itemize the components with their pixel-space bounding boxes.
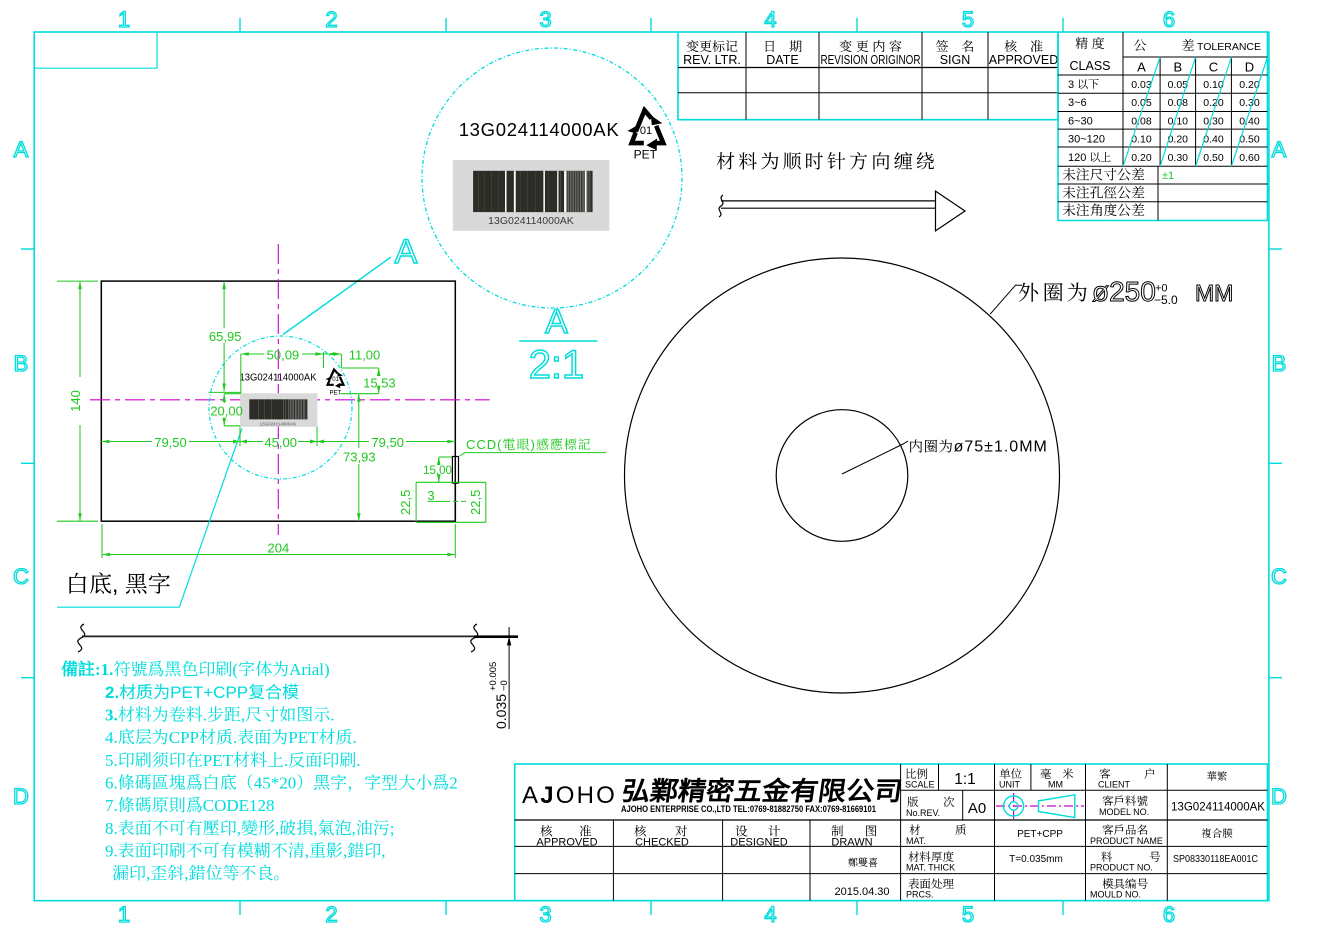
svg-text:SIGN: SIGN <box>940 53 971 67</box>
svg-text:PRODUCT NAME: PRODUCT NAME <box>1090 836 1163 846</box>
svg-text:140: 140 <box>68 390 83 412</box>
svg-text:D: D <box>13 784 29 809</box>
svg-text:5: 5 <box>962 902 974 927</box>
svg-text:複合膜: 複合膜 <box>1201 828 1233 840</box>
svg-text:華繁: 華繁 <box>1207 771 1228 783</box>
svg-text:MOULD NO.: MOULD NO. <box>1090 890 1141 900</box>
svg-text:−5.0: −5.0 <box>1154 293 1178 307</box>
svg-text:3: 3 <box>539 7 551 32</box>
svg-text:8.表面不可有壓印,變形,破損,氣泡,油污;: 8.表面不可有壓印,變形,破損,氣泡,油污; <box>105 819 394 838</box>
svg-text:材料为顺时针方向缠绕: 材料为顺时针方向缠绕 <box>716 151 938 173</box>
svg-text:D: D <box>1271 784 1287 809</box>
svg-text:1: 1 <box>118 7 130 32</box>
svg-text:A: A <box>1137 60 1146 75</box>
svg-text:2015.04.30: 2015.04.30 <box>834 886 889 898</box>
svg-text:TOLERANCE: TOLERANCE <box>1197 41 1261 53</box>
svg-text:45,00: 45,00 <box>264 435 297 450</box>
svg-text:204: 204 <box>268 541 290 556</box>
svg-text:0.30: 0.30 <box>1239 97 1260 109</box>
svg-text:5.印刷须印在PET材料上.反面印刷.: 5.印刷须印在PET材料上.反面印刷. <box>105 751 360 770</box>
svg-text:01: 01 <box>332 377 339 383</box>
svg-text:公: 公 <box>1133 38 1146 53</box>
svg-text:APPROVED: APPROVED <box>989 53 1058 67</box>
svg-text:MAT.: MAT. <box>906 836 926 846</box>
svg-text:PRCS.: PRCS. <box>906 890 934 900</box>
svg-text:0.05: 0.05 <box>1131 97 1152 109</box>
svg-text:0.035: 0.035 <box>493 694 509 729</box>
svg-text:5: 5 <box>962 7 974 32</box>
svg-text:A0: A0 <box>968 800 986 817</box>
svg-text:PET+CPP: PET+CPP <box>1017 829 1063 840</box>
svg-text:CLIENT: CLIENT <box>1098 780 1131 790</box>
svg-text:C: C <box>13 564 29 589</box>
svg-text:REV. LTR.: REV. LTR. <box>683 53 741 67</box>
svg-text:白底, 黑字: 白底, 黑字 <box>66 571 171 597</box>
svg-text:MODEL NO.: MODEL NO. <box>1099 807 1149 817</box>
svg-text:9.表面印刷不可有模糊不清,重影,錯印,: 9.表面印刷不可有模糊不清,重影,錯印, <box>105 841 386 860</box>
svg-text:PRODUCT NO.: PRODUCT NO. <box>1090 863 1153 873</box>
svg-text:MAT. THICK: MAT. THICK <box>906 863 955 873</box>
svg-text:变 更 内 容: 变 更 内 容 <box>839 39 902 54</box>
svg-text:13G024114000AK: 13G024114000AK <box>1171 800 1265 814</box>
svg-text:REVISION ORIGINOR: REVISION ORIGINOR <box>821 53 921 67</box>
svg-text:PET: PET <box>329 391 341 397</box>
svg-text:13G024114000AK: 13G024114000AK <box>459 119 620 140</box>
svg-text:1: 1 <box>118 902 130 927</box>
svg-text:0.08: 0.08 <box>1168 97 1189 109</box>
svg-text:73,93: 73,93 <box>343 450 376 465</box>
svg-text:B: B <box>1173 60 1182 75</box>
svg-text:6~30: 6~30 <box>1068 115 1093 127</box>
svg-text:SCALE: SCALE <box>905 780 935 790</box>
svg-text:±1: ±1 <box>1162 170 1174 182</box>
svg-text:4.底层为CPP材质.表面为PET材质.: 4.底层为CPP材质.表面为PET材质. <box>105 728 357 747</box>
svg-text:79,50: 79,50 <box>154 435 187 450</box>
svg-text:差: 差 <box>1181 38 1194 53</box>
svg-text:2:1: 2:1 <box>529 343 585 387</box>
svg-text:AJOHO ENTERPRISE CO.,LTD TEL:: AJOHO ENTERPRISE CO.,LTD TEL:0769-818827… <box>621 804 876 814</box>
svg-text:3 以下: 3 以下 <box>1068 78 1099 91</box>
svg-text:13G024114000AK: 13G024114000AK <box>488 215 574 227</box>
svg-text:2: 2 <box>325 902 337 927</box>
svg-text:ø250: ø250 <box>1092 276 1156 307</box>
svg-text:MM: MM <box>1048 780 1063 790</box>
svg-text:79,50: 79,50 <box>371 435 404 450</box>
svg-text:6: 6 <box>1163 902 1175 927</box>
svg-text:0.10: 0.10 <box>1131 134 1152 146</box>
svg-text:0.08: 0.08 <box>1131 115 1152 127</box>
svg-text:A: A <box>14 137 29 162</box>
svg-text:DRAWN: DRAWN <box>831 837 872 849</box>
svg-text:3: 3 <box>427 488 434 503</box>
svg-text:AJOHO: AJOHO <box>522 782 617 809</box>
svg-text:C: C <box>1209 60 1218 75</box>
svg-text:65,95: 65,95 <box>209 329 242 344</box>
svg-text:0.40: 0.40 <box>1239 115 1260 127</box>
svg-text:MM: MM <box>1195 280 1233 306</box>
svg-text:精 度: 精 度 <box>1074 36 1105 51</box>
svg-text:CCD(電眼)感應標記: CCD(電眼)感應標記 <box>466 437 592 452</box>
svg-text:DATE: DATE <box>766 53 798 67</box>
svg-text:CHECKED: CHECKED <box>635 837 689 849</box>
svg-text:未注尺寸公差: 未注尺寸公差 <box>1062 167 1145 183</box>
svg-text:3: 3 <box>539 902 551 927</box>
svg-text:DESIGNED: DESIGNED <box>730 837 788 849</box>
svg-text:弘鄴精密五金有限公司: 弘鄴精密五金有限公司 <box>620 776 904 806</box>
svg-text:4: 4 <box>764 7 776 32</box>
svg-text:B: B <box>14 351 29 376</box>
svg-text:APPROVED: APPROVED <box>536 837 597 849</box>
svg-text:CLASS: CLASS <box>1070 59 1111 73</box>
svg-text:B: B <box>1272 351 1287 376</box>
svg-text:No.REV.: No.REV. <box>906 808 940 818</box>
svg-text:漏印,歪斜,錯位等不良。: 漏印,歪斜,錯位等不良。 <box>112 864 291 883</box>
svg-text:11,00: 11,00 <box>349 348 381 363</box>
svg-text:0.50: 0.50 <box>1239 134 1260 146</box>
svg-text:内圈为ø75±1.0MM: 内圈为ø75±1.0MM <box>909 439 1048 456</box>
svg-text:3~6: 3~6 <box>1068 97 1087 109</box>
svg-text:2: 2 <box>325 7 337 32</box>
svg-text:T=0.035mm: T=0.035mm <box>1009 854 1063 865</box>
svg-text:13G024114000AK: 13G024114000AK <box>240 372 317 384</box>
svg-text:0.40: 0.40 <box>1203 134 1224 146</box>
svg-text:01: 01 <box>640 125 652 137</box>
svg-text:120 以上: 120 以上 <box>1068 151 1111 164</box>
svg-text:30~120: 30~120 <box>1068 134 1105 146</box>
svg-text:C: C <box>1271 564 1287 589</box>
svg-text:A: A <box>1272 137 1287 162</box>
svg-text:15,00: 15,00 <box>423 465 452 477</box>
svg-text:20,00: 20,00 <box>210 404 243 419</box>
svg-text:D: D <box>1245 60 1254 75</box>
svg-text:0.50: 0.50 <box>1203 152 1224 164</box>
svg-text:2.材质为PET+CPP复合模: 2.材质为PET+CPP复合模 <box>105 683 299 702</box>
svg-text:6: 6 <box>1163 7 1175 32</box>
svg-text:0.20: 0.20 <box>1131 152 1152 164</box>
svg-text:UNIT: UNIT <box>999 780 1020 790</box>
svg-text:0.20: 0.20 <box>1203 97 1224 109</box>
svg-text:15,53: 15,53 <box>363 376 396 391</box>
svg-text:22,5: 22,5 <box>398 490 413 515</box>
svg-text:+0.005: +0.005 <box>488 662 499 691</box>
svg-text:A: A <box>395 233 418 271</box>
svg-text:13G024114000AK: 13G024114000AK <box>260 422 297 427</box>
svg-text:SP08330118EA001C: SP08330118EA001C <box>1173 853 1258 865</box>
svg-text:7.條碼原則爲CODE128: 7.條碼原則爲CODE128 <box>105 796 275 815</box>
svg-text:6.條碼區塊爲白底（45*20）黑字，字型大小爲2: 6.條碼區塊爲白底（45*20）黑字，字型大小爲2 <box>105 774 458 793</box>
svg-text:外圈为: 外圈为 <box>1018 282 1092 305</box>
svg-text:A: A <box>545 303 568 341</box>
svg-text:1:1: 1:1 <box>954 771 976 788</box>
svg-text:0.10: 0.10 <box>1168 115 1189 127</box>
svg-text:22,5: 22,5 <box>468 490 483 515</box>
svg-text:50,09: 50,09 <box>267 348 300 363</box>
svg-text:0.30: 0.30 <box>1168 152 1189 164</box>
svg-text:鄭雙喜: 鄭雙喜 <box>848 857 878 869</box>
svg-text:4: 4 <box>764 902 776 927</box>
svg-text:变更标记: 变更标记 <box>686 39 738 54</box>
svg-text:未注角度公差: 未注角度公差 <box>1062 202 1145 218</box>
svg-text:3.材料为卷料.步距,尺寸如图示.: 3.材料为卷料.步距,尺寸如图示. <box>105 706 335 725</box>
svg-text:未注孔徑公差: 未注孔徑公差 <box>1062 184 1145 200</box>
svg-text:0.30: 0.30 <box>1203 115 1224 127</box>
svg-text:PET: PET <box>634 148 658 162</box>
svg-text:−0: −0 <box>499 680 510 691</box>
svg-text:備註:1.符號爲黑色印刷(字体为Arial): 備註:1.符號爲黑色印刷(字体为Arial) <box>61 660 330 679</box>
svg-text:0.60: 0.60 <box>1239 152 1260 164</box>
